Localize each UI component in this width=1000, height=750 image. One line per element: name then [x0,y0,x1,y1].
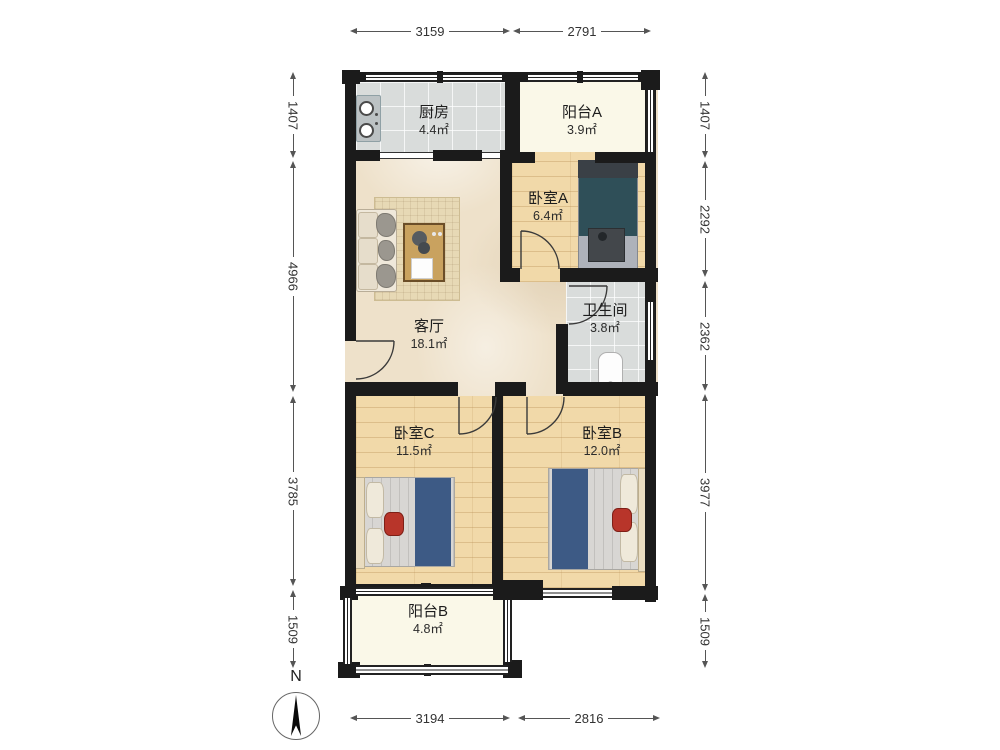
bedroom-c-balcony-window [356,587,493,596]
bedroom-b-red-pillow [612,508,632,532]
wall-segment [612,586,658,600]
burner-icon [359,123,374,138]
sofa-cushion [358,238,378,264]
kitchen-slider [380,152,433,159]
dimension-left-2: 4966 [285,161,301,392]
dimension-right-4: 3977 [697,394,713,591]
sofa-pillow [378,240,395,261]
dimension-top-left: 3159 [350,23,510,39]
floor-plan: 厨房 4.4㎡ 阳台A 3.9㎡ 卧室A 6.4㎡ 卫生间 3.8㎡ 客厅 18… [0,0,1000,750]
bedroom-c-pillow [366,482,384,518]
dimension-value: 1509 [286,610,301,649]
dimension-value: 3159 [411,24,450,39]
wall-segment [500,268,520,282]
wall-segment [492,396,503,588]
window-mullion [437,71,443,83]
wall-segment [345,388,356,600]
dimension-value: 4966 [286,257,301,296]
compass-icon [272,692,320,740]
dimension-left-1: 1407 [285,72,301,158]
sofa-cushion [358,264,378,290]
wall-segment [433,150,482,161]
balcony-a-side-window [646,90,655,152]
dimension-right-5: 1509 [697,594,713,668]
dimension-value: 1407 [286,96,301,135]
bathroom-window [646,302,655,360]
wall-segment [500,150,512,282]
wall-segment [345,72,356,341]
dimension-right-3: 2362 [697,281,713,391]
dimension-value: 3194 [411,711,450,726]
wall-segment [560,268,658,282]
sofa-cushion [358,212,378,238]
table-bowl [418,242,430,254]
table-dot [432,232,436,236]
wall-segment [495,382,526,396]
burner-icon [359,101,374,116]
dimension-bottom-right: 2816 [518,710,660,726]
balcony-b-right-window [503,600,512,662]
balcony-b-left-window [343,598,352,664]
dimension-right-1: 1407 [697,72,713,158]
window-mullion [577,71,583,83]
north-arrow-icon [285,695,307,736]
dimension-value: 1509 [698,612,713,651]
table-dot [438,232,442,236]
wall-segment [345,382,458,396]
dimension-value: 3785 [286,472,301,511]
dimension-bottom-left: 3194 [350,710,510,726]
wall-segment [595,152,655,163]
stove-knob [375,122,378,125]
sofa-pillow [376,213,396,237]
north-label: N [272,668,320,686]
dimension-value: 2791 [563,24,602,39]
dimension-value: 3977 [698,473,713,512]
wall-segment [563,382,658,396]
wall-segment [493,580,543,600]
desk-item [598,232,607,241]
dimension-value: 2292 [698,200,713,239]
bedroom-c-pillow [366,528,384,564]
kitchen-window [366,73,502,82]
stove-knob [375,113,378,116]
dimension-left-4: 1509 [285,590,301,668]
balcony-b-bottom-window [356,665,508,675]
bedroom-c-red-pillow [384,512,404,536]
dimension-value: 2816 [570,711,609,726]
dimension-value: 2362 [698,317,713,356]
balcony-a-window [528,73,638,82]
bedroom-b-runner [552,469,588,569]
bedroom-a-desk [588,228,625,262]
wall-segment [345,150,380,161]
bedroom-c-runner [415,478,451,566]
dimension-value: 1407 [698,96,713,135]
bedroom-b-window [543,588,612,598]
table-tray [411,258,433,279]
dimension-left-3: 3785 [285,396,301,586]
balcony-a-floor [520,82,645,160]
dimension-right-2: 2292 [697,161,713,277]
wall-segment [505,72,520,162]
dimension-top-right: 2791 [513,23,651,39]
balcony-b-floor [352,592,510,668]
sofa-pillow [376,264,396,288]
